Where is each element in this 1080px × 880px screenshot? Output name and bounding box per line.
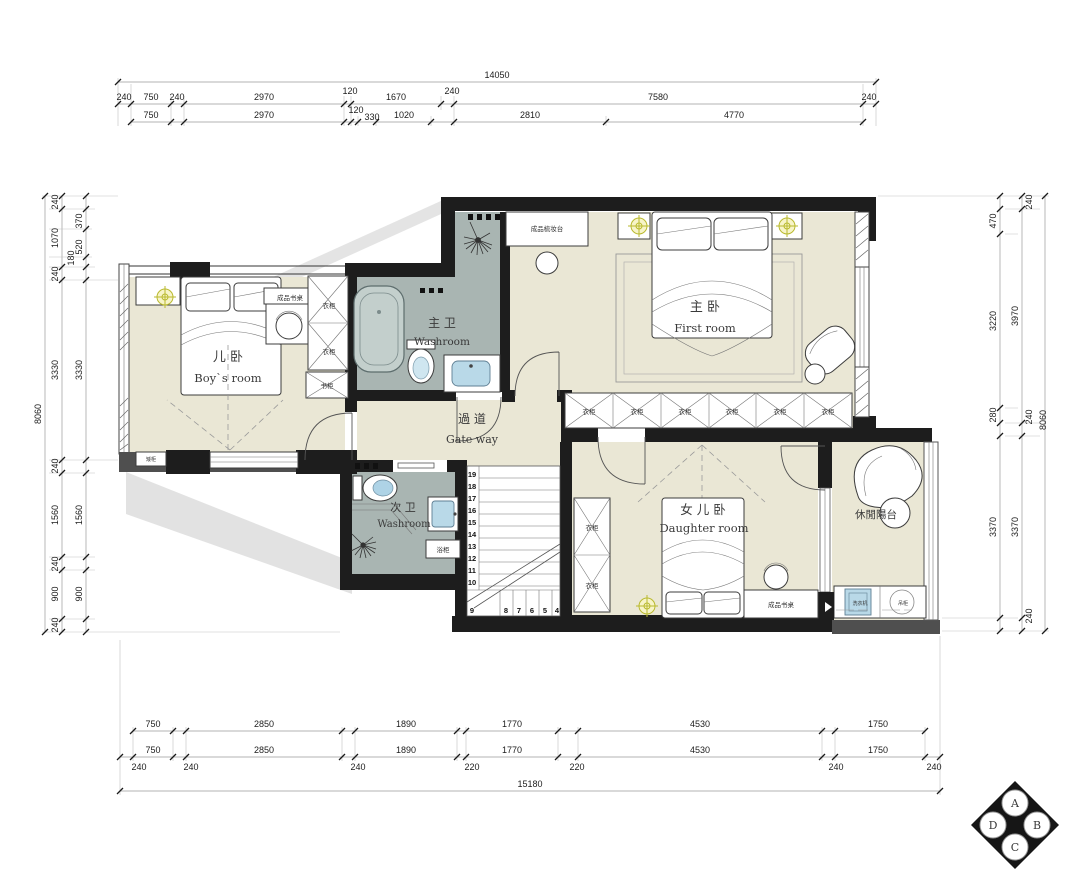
dim-text: 2850 [254,745,274,755]
right-pier-bottom [855,367,869,417]
dim-text: 3370 [988,517,998,537]
compass: A B C D [971,781,1059,869]
daughter-pillow-right [704,592,740,614]
wall-masterdoor-b [557,390,562,402]
master-room-label-zh: 主 卧 [690,300,720,315]
dims-top: 14050 240 750 240 2970 120 1670 240 7580… [115,70,879,126]
dim-text: 120 [348,105,363,115]
master-sink-faucet [469,364,473,368]
dim-text: 1560 [74,505,84,525]
daughter-chair [764,565,788,589]
dim-text: 8060 [1038,410,1048,430]
second-toilet-tank [353,476,362,500]
wardrobe-label: 衣柜 [774,407,788,416]
wardrobe-label: 衣柜 [323,347,337,356]
dim-text: 470 [988,213,998,228]
bookcase-label: 书柜 [321,381,335,390]
dim-text: 220 [464,762,479,772]
stair-number: 12 [468,554,476,563]
dim-text: 240 [1024,608,1034,623]
dim-text: 3370 [1010,517,1020,537]
wardrobe-label: 衣柜 [586,523,600,532]
wardrobe-label: 衣柜 [586,581,600,590]
dim-text: 750 [143,92,158,102]
wall-balcony-top [818,428,932,442]
dim-text: 1750 [868,745,888,755]
dim-text: 1890 [396,745,416,755]
wardrobe-label: 衣柜 [726,407,740,416]
dim-text: 750 [145,745,160,755]
stair-number: 14 [468,530,477,539]
wall-masterbath-bottom [352,390,456,401]
wall-masterdoor-a [502,390,515,402]
dim-text: 240 [116,92,131,102]
wall-stairs-daughter [560,442,572,616]
wall-balcony-bottom-gray [832,620,940,634]
bathtub [354,286,404,372]
dims-bottom: 750 2850 1890 1770 4530 1750 750 2850 18… [117,636,943,795]
wall-top [443,197,876,211]
stairs [467,466,560,616]
master-pillow-left [657,218,711,250]
dim-text: 3220 [988,311,998,331]
dim-text: 240 [1024,409,1034,424]
dim-text: 2850 [254,719,274,729]
dim-text: 180 [66,250,76,265]
wardrobe-label: 衣柜 [631,407,645,416]
floor-plan-canvas: 14050 240 750 240 2970 120 1670 240 7580… [0,0,1080,880]
masterbath-label-zh: 主 卫 [428,316,456,330]
wall-secondbath-left [340,460,352,590]
secondbath-pocket-door [398,463,434,468]
secondbath-label-en: Washroom [377,519,431,530]
dim-text: 1750 [868,719,888,729]
dim-text: 1770 [502,719,522,729]
stair-number: 13 [468,542,476,551]
boys-window-seat [210,452,298,468]
dim-text: 750 [143,110,158,120]
dim-text: 7580 [648,92,668,102]
wall-boys-bottom-block1 [166,450,210,474]
master-room-label-en: First room [674,321,736,335]
dim-text: 240 [50,194,60,209]
wall-entry-vertical [441,197,455,277]
boys-chair [276,313,302,339]
compass-letter-b: B [1033,819,1041,832]
low-cabinet-label: 矮柜 [146,456,156,463]
dim-text: 4530 [690,745,710,755]
daughter-room-label-zh: 女 儿 卧 [680,502,725,517]
second-sink-basin [432,501,454,527]
balcony-label-zh: 休閒陽台 [855,508,897,521]
stair-number: 15 [468,518,476,527]
master-pillow-right [714,218,768,250]
dresser-stool [536,252,558,274]
stair-number: 9 [470,606,474,615]
hall-label-zh: 過 道 [458,412,486,426]
wall-masterbath-top [345,263,455,277]
stair-number: 18 [468,482,476,491]
dim-text: 240 [50,266,60,281]
dim-text: 900 [50,586,60,601]
dim-text: 240 [169,92,184,102]
dim-text: 240 [50,556,60,571]
dim-text: 1890 [396,719,416,729]
stair-number: 10 [468,578,476,587]
hall-label-en: Gate way [446,433,499,446]
master-right-window [855,267,869,367]
dim-text: 240 [828,762,843,772]
wall-stairs-bottom [452,616,574,632]
dim-text: 1560 [50,505,60,525]
daughter-pillow-left [666,592,702,614]
dim-text: 240 [444,86,459,96]
second-toilet-bowl [373,480,393,496]
dim-text: 240 [183,762,198,772]
dim-text: 1020 [394,110,414,120]
dim-text: 3970 [1010,306,1020,326]
dim-text: 240 [1024,194,1034,209]
wall-master-daughter-a [561,428,598,442]
daughter-room-label-en: Daughter room [659,521,748,535]
dim-text: 2810 [520,110,540,120]
wardrobe-label: 衣柜 [822,407,836,416]
washer-label: 洗衣机 [852,600,867,607]
bathtub-drain [377,310,381,314]
master-toilet-bowl [413,357,429,379]
master-wardrobe-row [565,393,852,428]
wardrobe-label: 衣柜 [323,301,337,310]
dim-text: 900 [74,586,84,601]
stair-number: 11 [468,566,476,575]
dim-text: 8060 [33,404,43,424]
stair-number: 8 [504,606,508,615]
wardrobe-label: 衣柜 [583,407,597,416]
stair-number: 7 [517,606,521,615]
boys-desk-label: 成品书桌 [277,293,304,302]
wall-daughter-balcony-a [818,440,832,488]
dim-text: 240 [50,617,60,632]
wall-secondbath-bottom [340,574,467,590]
stair-number: 5 [543,606,547,615]
hanging-cabinet-label: 吊柜 [898,600,908,607]
daughter-desk-label: 成品书桌 [768,600,795,609]
stair-number: 6 [530,606,534,615]
masterbath-label-en: Washroom [414,336,470,348]
shadow-wedge-bottom [126,472,352,594]
second-sink-faucet [453,512,456,515]
dim-text: 14050 [484,70,509,80]
dim-text: 15180 [517,779,542,789]
dim-text: 4770 [724,110,744,120]
master-ottoman [805,364,825,384]
boys-room-label-zh: 儿 卧 [213,350,243,365]
dim-text: 3330 [74,360,84,380]
dim-text: 240 [350,762,365,772]
dim-text: 240 [926,762,941,772]
dim-text: 240 [131,762,146,772]
dim-text: 280 [988,407,998,422]
boys-room-label-en: Boy`s room [194,371,262,385]
dim-text: 120 [342,86,357,96]
compass-letter-a: A [1010,797,1020,810]
dim-text: 240 [50,458,60,473]
boys-pillow-left [186,283,230,311]
compass-letter-c: C [1011,841,1019,854]
dim-text: 750 [145,719,160,729]
wall-master-daughter-b [645,428,820,442]
dim-text: 2970 [254,92,274,102]
stair-number: 16 [468,506,476,515]
dim-text: 2970 [254,110,274,120]
dim-text: 1770 [502,745,522,755]
compass-letter-d: D [989,819,998,832]
dim-text: 240 [861,92,876,102]
dim-text: 220 [569,762,584,772]
dim-text: 330 [364,112,379,122]
wardrobe-label: 衣柜 [679,407,693,416]
dim-text: 370 [74,213,84,228]
dim-text: 1070 [50,228,60,248]
dim-text: 1670 [386,92,406,102]
dresser-label: 成品梳妆台 [531,224,564,233]
wall-stairs-left [455,460,467,616]
floor-plan-drawing: 14050 240 750 240 2970 120 1670 240 7580… [0,0,1080,880]
stair-number: 17 [468,494,476,503]
stair-number: 19 [468,470,476,479]
secondbath-label-zh: 次 卫 [390,500,416,514]
dim-text: 4530 [690,719,710,729]
dim-text: 3330 [50,360,60,380]
bath-cabinet-label: 浴柜 [437,545,451,554]
